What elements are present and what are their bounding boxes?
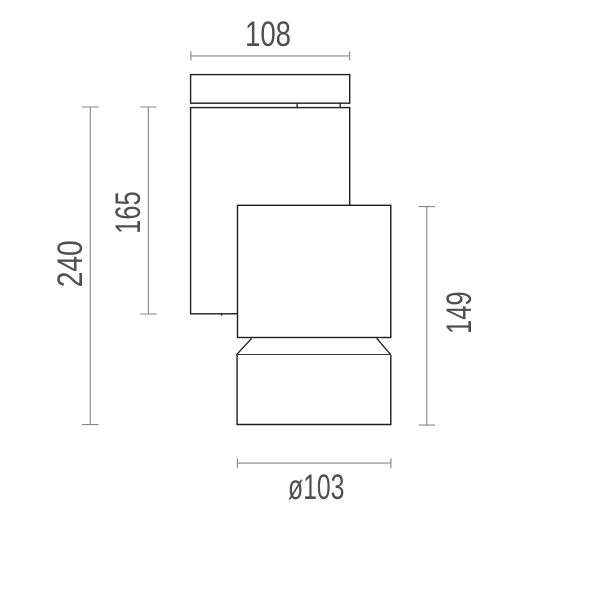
svg-text:165: 165 bbox=[108, 191, 148, 234]
svg-text:ø103: ø103 bbox=[288, 467, 345, 507]
svg-text:108: 108 bbox=[245, 14, 291, 54]
svg-text:149: 149 bbox=[439, 291, 479, 334]
svg-text:240: 240 bbox=[50, 240, 90, 287]
